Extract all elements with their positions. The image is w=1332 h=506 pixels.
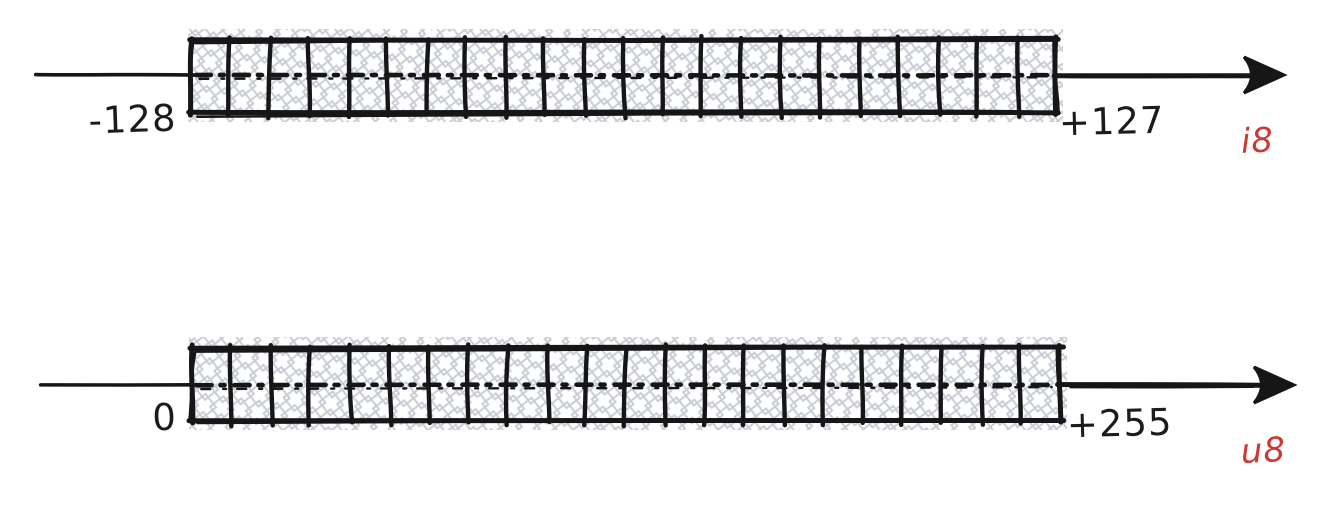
arrow-head-icon (1244, 57, 1284, 93)
max-value-label: +255 (1066, 401, 1173, 447)
cell-tick-mark (228, 38, 229, 115)
sketch-diagram: -128 +127 i8 0 +255 u8 (0, 0, 1332, 506)
number-line-u8: 0 +255 u8 (41, 337, 1294, 472)
cell-tick-mark (859, 39, 861, 116)
center-dashed-line (197, 385, 1056, 386)
number-lines-figure: -128 +127 i8 0 +255 u8 (0, 0, 1332, 506)
type-label: i8 (1240, 120, 1275, 162)
arrow-line (1058, 384, 1278, 385)
cell-tick-mark (861, 347, 863, 423)
type-label: u8 (1240, 430, 1287, 472)
min-value-label: -128 (88, 96, 177, 142)
cell-tick-mark (901, 346, 902, 425)
cell-tick-mark (823, 345, 825, 425)
cell-tick-mark (898, 37, 900, 116)
axis-tail-line (36, 75, 196, 76)
arrow-head-icon (1254, 367, 1294, 403)
min-value-label: 0 (152, 396, 178, 440)
max-value-label: +127 (1058, 99, 1165, 145)
arrow-line (1070, 387, 1253, 388)
number-line-i8: -128 +127 i8 (36, 29, 1284, 162)
cell-tick-mark (623, 38, 625, 118)
cell-tick-mark (230, 345, 232, 426)
